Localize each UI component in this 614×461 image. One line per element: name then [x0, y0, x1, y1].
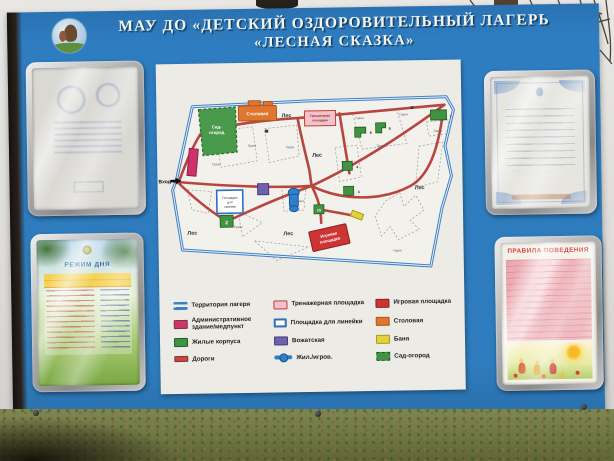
- board-title: МАУ ДО «ДЕТСКИЙ ОЗДОРОВИТЕЛЬНЫЙ ЛАГЕРЬ «…: [85, 11, 584, 55]
- lawn-label: Газон: [296, 199, 305, 203]
- lawn-label: Газон: [212, 162, 221, 166]
- legend-item-playground: Игровая площадка: [375, 296, 463, 309]
- building-3: [344, 186, 354, 195]
- legend-item-counselor: Вожатская: [274, 333, 372, 347]
- bolt-icon: [315, 411, 321, 417]
- map-legend: Территория лагеря Тренажерная площадка И…: [173, 296, 461, 366]
- forest-label: Лес: [282, 113, 292, 119]
- admin-swatch-icon: [174, 319, 188, 328]
- building-7: [430, 110, 446, 120]
- building-7-number: 7: [449, 115, 451, 119]
- counselor-swatch-icon: [274, 336, 288, 345]
- building-3-number: 3: [358, 190, 360, 194]
- info-board: МАУ ДО «ДЕТСКИЙ ОЗДОРОВИТЕЛЬНЫЙ ЛАГЕРЬ «…: [7, 3, 605, 419]
- building-2a-number: 2А: [317, 208, 322, 212]
- frame-bottom-right: ПРАВИЛА ПОВЕДЕНИЯ: [494, 235, 603, 391]
- map-marker: [410, 106, 413, 109]
- legend-item-roads: Дороги: [174, 352, 270, 366]
- housing-swatch-icon: [174, 338, 188, 347]
- garden-swatch-icon: [376, 351, 390, 360]
- camp-map: Сад-огород Столовая Тренажернаяплощадка …: [156, 88, 464, 288]
- glass-reflection: [32, 67, 140, 211]
- lawn-label: Газон: [393, 248, 402, 252]
- map-marker: [265, 130, 269, 133]
- rules-poster: ПРАВИЛА ПОВЕДЕНИЯ: [501, 241, 598, 384]
- glass-reflection: [36, 239, 139, 387]
- dark-ground-patch: [0, 417, 180, 461]
- legend-item-assembly: Площадка для линейки: [274, 314, 372, 330]
- legend-item-bathhouse: Баня: [376, 332, 464, 345]
- gym-label: Тренажернаяплощадка: [310, 114, 330, 123]
- territory-line-icon: [173, 302, 187, 310]
- legend-item-territory: Территория лагеря: [173, 299, 269, 313]
- logo-grass: [51, 42, 88, 54]
- frame-top-left: [26, 61, 146, 217]
- forest-label: Лес: [187, 231, 197, 237]
- assembly-ground: Площадкадлялинейки: [217, 190, 243, 213]
- glass-reflection: [490, 76, 591, 210]
- admin-building: [187, 148, 198, 176]
- lawn-label: Газон: [234, 225, 243, 229]
- map-panel: Сад-огород Столовая Тренажернаяплощадка …: [156, 60, 466, 395]
- legend-item-water: Жил./игров.: [274, 350, 372, 364]
- entrance-label: Вход: [158, 179, 171, 185]
- logo-figure-2: [59, 31, 66, 42]
- building-2-number: 2: [225, 220, 228, 226]
- document-poster: [32, 67, 140, 211]
- legend-item-housing: Жилые корпуса: [174, 335, 270, 349]
- camp-logo-icon: [51, 17, 88, 54]
- lawn-label: Газон: [399, 112, 408, 116]
- gym-swatch-icon: [273, 300, 287, 309]
- assembly-swatch-icon: [274, 318, 287, 327]
- forest-label: Лес: [312, 153, 322, 159]
- logo-figure: [64, 25, 77, 42]
- lawn-label: Газон: [355, 116, 364, 120]
- bathhouse-swatch-icon: [376, 334, 390, 343]
- lawn-label: Газон: [286, 145, 295, 149]
- bolt-icon: [581, 404, 587, 410]
- lawn-label: Газон: [248, 144, 257, 148]
- forest-label: Лес: [415, 185, 425, 191]
- roads-swatch-icon: [174, 356, 188, 362]
- daily-schedule-poster: РЕЖИМ ДНЯ: [36, 239, 139, 387]
- forest-label: Лес: [283, 231, 293, 237]
- legend-item-canteen: Столовая: [376, 313, 464, 329]
- photo-of-camp-info-board: МАУ ДО «ДЕТСКИЙ ОЗДОРОВИТЕЛЬНЫЙ ЛАГЕРЬ «…: [0, 0, 614, 461]
- gym-area: Тренажернаяплощадка: [304, 111, 335, 126]
- building-4-number: 4: [356, 165, 358, 169]
- lawn-label: Газон: [434, 129, 443, 133]
- building-4: [342, 161, 352, 170]
- building-9-number: 9: [370, 131, 372, 135]
- lawn-label: Газон: [377, 144, 386, 148]
- building-8-number: 8: [389, 127, 391, 131]
- legend-item-gym: Тренажерная площадка: [273, 297, 371, 311]
- canteen-swatch-icon: [376, 316, 390, 325]
- water-line-icon: [274, 353, 292, 362]
- legend-item-garden: Сад-огород: [376, 349, 464, 362]
- frame-bottom-left: РЕЖИМ ДНЯ: [30, 233, 145, 393]
- glass-reflection: [501, 241, 598, 384]
- frame-top-right: [484, 69, 597, 215]
- certificate-poster: [490, 76, 591, 210]
- counselor-building: [258, 184, 269, 195]
- playground-swatch-icon: [375, 298, 389, 307]
- canteen-label: Столовая: [246, 111, 268, 116]
- legend-item-admin: Административное здание/медпункт: [174, 316, 270, 332]
- bolt-icon: [33, 410, 39, 416]
